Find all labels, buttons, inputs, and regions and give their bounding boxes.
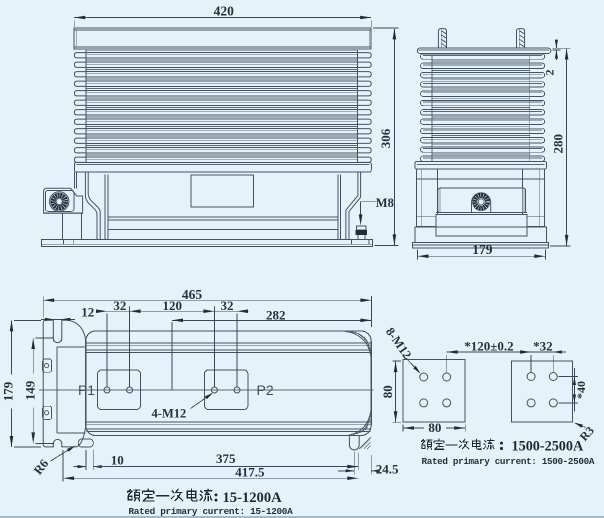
svg-text:15-1200A: 15-1200A [223,490,283,506]
svg-text:282: 282 [266,307,286,322]
svg-text:80: 80 [380,385,395,398]
svg-text:306: 306 [378,128,393,148]
svg-text:10: 10 [111,452,124,467]
svg-text:465: 465 [182,287,203,302]
svg-text:M8: M8 [376,196,394,210]
svg-text:149: 149 [22,380,37,400]
svg-text:32: 32 [221,298,234,313]
svg-text:Rated primary current: 15-1200: Rated primary current: 15-1200A [129,506,294,517]
svg-text:179: 179 [0,381,15,401]
svg-text:375: 375 [216,451,236,466]
svg-text:*120±0.2: *120±0.2 [464,338,513,353]
svg-text:P2: P2 [257,382,274,398]
svg-text:417.5: 417.5 [235,465,265,480]
svg-text:179: 179 [472,242,493,257]
svg-text:24.5: 24.5 [376,461,399,476]
svg-text:*40: *40 [574,381,588,399]
svg-text:1500-2500A: 1500-2500A [512,438,584,454]
svg-text:280: 280 [551,134,566,154]
svg-text:2: 2 [543,70,557,76]
svg-text:Rated primary current: 1500-25: Rated primary current: 1500-2500A [422,456,595,467]
svg-text:12: 12 [81,305,94,320]
svg-text:120: 120 [163,298,183,313]
svg-text:4-M12: 4-M12 [152,407,187,421]
svg-text:*32: *32 [533,338,553,353]
svg-text:P1: P1 [78,382,95,398]
svg-text:32: 32 [113,298,126,313]
svg-text:420: 420 [214,4,235,19]
svg-text:80: 80 [428,420,441,435]
